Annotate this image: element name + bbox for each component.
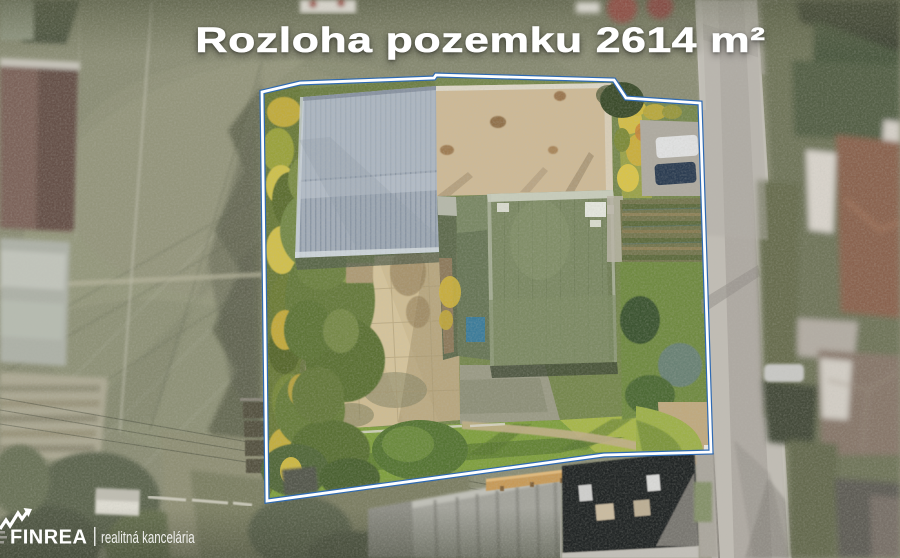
svg-text:FINREA: FINREA	[10, 527, 87, 549]
svg-text:realitná kancelária: realitná kancelária	[101, 529, 195, 548]
